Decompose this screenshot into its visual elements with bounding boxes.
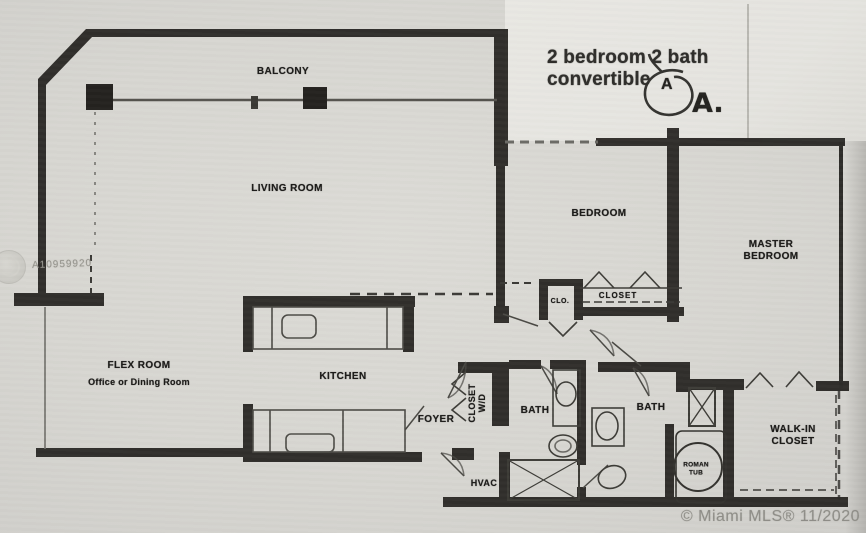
hall-closet-label: CLO. — [551, 296, 570, 308]
master-line1: MASTER — [743, 239, 798, 251]
plan-type-line1: 2 bedroom 2 bath — [547, 47, 709, 69]
hvac-label: HVAC — [471, 477, 497, 489]
floorplan-linework — [0, 0, 866, 533]
kitchen-label: KITCHEN — [319, 371, 366, 383]
flex-title: FLEX ROOM — [88, 360, 190, 372]
circled-letter: A — [661, 76, 673, 94]
plan-type-annotation: 2 bedroom 2 bath convertible — [547, 47, 709, 91]
walkin-closet-label: WALK-IN CLOSET — [770, 424, 816, 448]
roman-line2: TUB — [683, 469, 709, 477]
door-swings — [405, 314, 649, 488]
roman-tub-label: ROMAN TUB — [683, 462, 709, 477]
hall-bath-label: BATH — [521, 405, 550, 417]
copyright-text: © Miami MLS® 11/2020 — [681, 508, 860, 526]
living-room-label: LIVING ROOM — [251, 183, 323, 195]
flex-subtitle: Office or Dining Room — [88, 376, 190, 388]
bedroom-closet-label: CLOSET — [599, 290, 637, 302]
balcony-railing — [86, 84, 497, 250]
master-bath-label: BATH — [637, 402, 666, 414]
flex-room-label: FLEX ROOM Office or Dining Room — [88, 360, 190, 388]
master-right-wall — [839, 142, 841, 500]
closet-wd-line1: CLOSET — [467, 384, 477, 423]
closet-wd-label: CLOSET W/D — [467, 384, 487, 423]
unit-letter: A. — [692, 88, 724, 119]
master-line2: BEDROOM — [743, 251, 798, 263]
roman-line1: ROMAN — [683, 462, 709, 470]
listing-id-watermark: A10959920 — [32, 258, 93, 271]
master-bedroom-label: MASTER BEDROOM — [743, 239, 798, 263]
foyer-label: FOYER — [418, 414, 454, 426]
bedroom-label: BEDROOM — [571, 208, 626, 220]
walkin-line1: WALK-IN — [770, 424, 816, 436]
balcony-label: BALCONY — [257, 66, 309, 78]
walkin-line2: CLOSET — [770, 436, 816, 448]
closet-wd-line2: W/D — [477, 384, 487, 423]
floorplan-scan: BALCONY LIVING ROOM BEDROOM MASTER BEDRO… — [0, 0, 866, 533]
plan-type-line2: convertible — [547, 69, 709, 91]
